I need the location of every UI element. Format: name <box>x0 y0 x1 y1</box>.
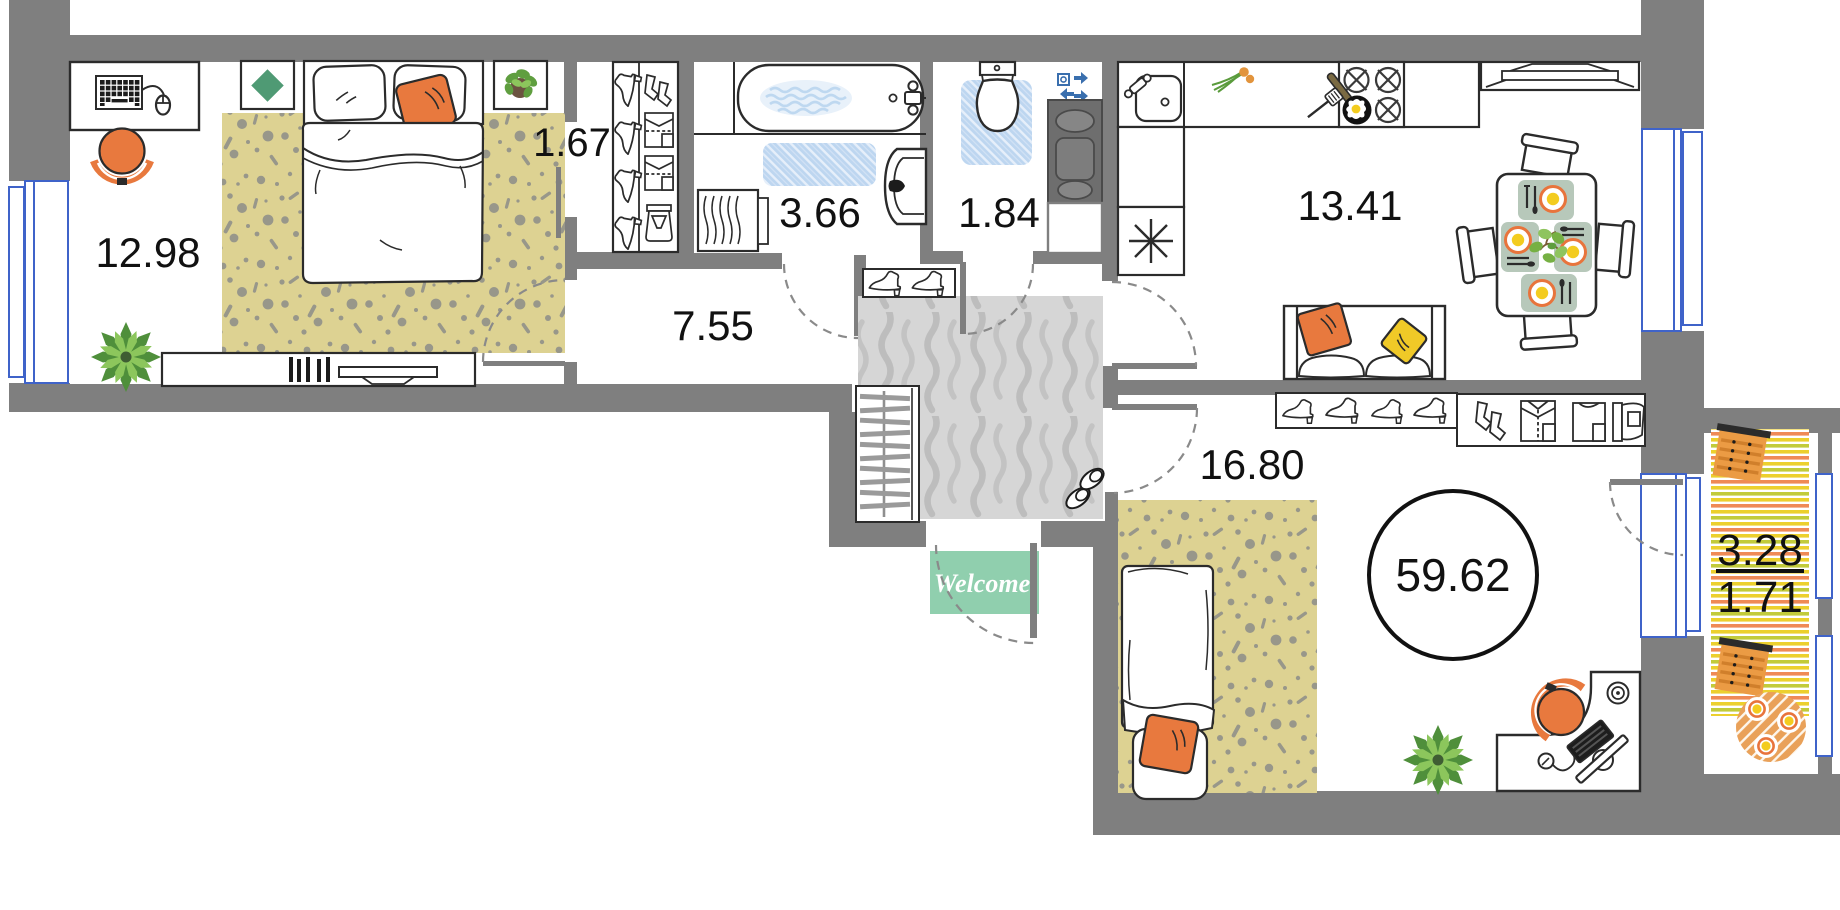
svg-text:3.28: 3.28 <box>1717 526 1803 575</box>
svg-text:12.98: 12.98 <box>95 229 200 276</box>
svg-text:7.55: 7.55 <box>672 302 754 349</box>
svg-text:3.66: 3.66 <box>779 189 861 236</box>
svg-text:16.80: 16.80 <box>1199 441 1304 488</box>
svg-text:13.41: 13.41 <box>1297 182 1402 229</box>
svg-text:59.62: 59.62 <box>1395 549 1510 601</box>
svg-text:1.71: 1.71 <box>1717 573 1803 622</box>
svg-text:1.84: 1.84 <box>958 189 1040 236</box>
svg-text:1.67: 1.67 <box>533 121 611 165</box>
